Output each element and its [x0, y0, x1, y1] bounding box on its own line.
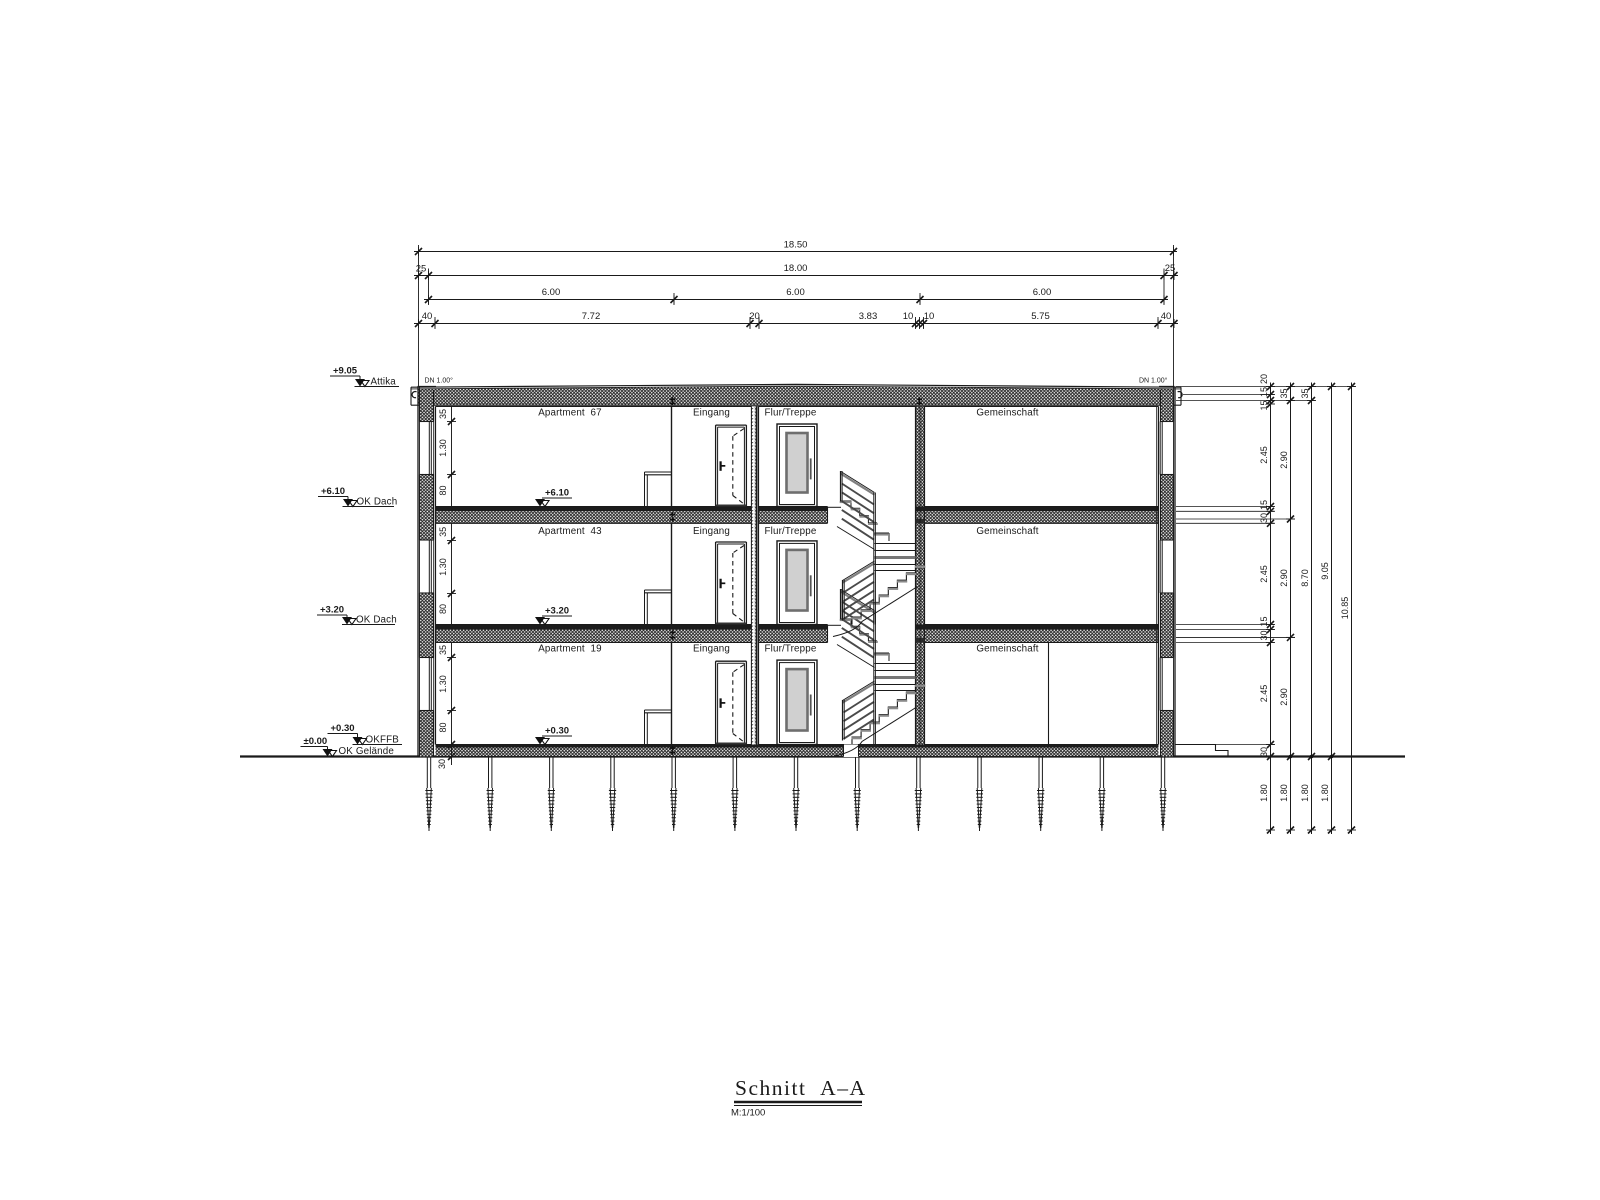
svg-text:2.90: 2.90 — [1279, 569, 1289, 587]
svg-text:2.90: 2.90 — [1279, 451, 1289, 469]
svg-text:+3.20: +3.20 — [320, 605, 344, 616]
svg-text:Apartment 67: Apartment 67 — [538, 408, 602, 419]
svg-text:1.30: 1.30 — [438, 439, 448, 457]
svg-text:Attika: Attika — [371, 377, 397, 388]
svg-text:80: 80 — [438, 485, 448, 495]
svg-text:18.00: 18.00 — [784, 263, 808, 274]
svg-text:Gemeinschaft: Gemeinschaft — [976, 644, 1038, 655]
svg-text:2.90: 2.90 — [1279, 688, 1289, 706]
svg-text:Flur/Treppe: Flur/Treppe — [765, 526, 817, 537]
svg-text:1.80: 1.80 — [1259, 784, 1269, 802]
svg-text:+6.10: +6.10 — [545, 488, 569, 499]
svg-text:35: 35 — [438, 409, 448, 419]
svg-text:9.05: 9.05 — [1320, 562, 1330, 580]
svg-text:30: 30 — [1259, 747, 1269, 757]
svg-text:7.72: 7.72 — [582, 311, 601, 322]
svg-text:+9.05: +9.05 — [333, 366, 358, 377]
svg-text:40: 40 — [1161, 311, 1172, 322]
svg-text:+0.30: +0.30 — [331, 723, 355, 734]
svg-text:1.80: 1.80 — [1300, 784, 1310, 802]
svg-text:30: 30 — [437, 759, 447, 769]
svg-text:DN 1.00°: DN 1.00° — [425, 377, 454, 385]
svg-text:35: 35 — [438, 645, 448, 655]
svg-text:25: 25 — [416, 264, 427, 275]
svg-text:Gemeinschaft: Gemeinschaft — [976, 408, 1038, 419]
svg-text:40: 40 — [422, 311, 433, 322]
svg-text:1.30: 1.30 — [438, 558, 448, 576]
svg-text:6.00: 6.00 — [786, 287, 805, 298]
svg-text:20: 20 — [749, 311, 760, 322]
svg-text:6.00: 6.00 — [1033, 287, 1052, 298]
svg-text:10: 10 — [924, 311, 935, 322]
svg-text:OK Dach: OK Dach — [357, 497, 398, 508]
svg-text:OK Gelände: OK Gelände — [339, 746, 395, 757]
svg-text:+6.10: +6.10 — [321, 486, 345, 497]
svg-text:35: 35 — [1279, 388, 1289, 398]
svg-text:15: 15 — [1259, 616, 1269, 626]
svg-text:18.50: 18.50 — [784, 240, 808, 251]
svg-text:10: 10 — [903, 311, 914, 322]
svg-text:35: 35 — [1300, 388, 1310, 398]
svg-text:Apartment 19: Apartment 19 — [538, 644, 602, 655]
svg-text:30: 30 — [1259, 513, 1269, 523]
svg-text:Eingang: Eingang — [693, 526, 730, 537]
svg-text:Gemeinschaft: Gemeinschaft — [976, 526, 1038, 537]
svg-text:DN 1.00°: DN 1.00° — [1139, 377, 1168, 385]
svg-text:+3.20: +3.20 — [545, 606, 569, 617]
svg-text:Flur/Treppe: Flur/Treppe — [765, 644, 817, 655]
svg-text:2.45: 2.45 — [1259, 446, 1269, 464]
svg-text:10.85: 10.85 — [1340, 597, 1350, 620]
svg-text:OKFFB: OKFFB — [366, 735, 400, 746]
svg-text:Schnitt A–A: Schnitt A–A — [735, 1076, 866, 1100]
svg-text:2.45: 2.45 — [1259, 685, 1269, 703]
svg-text:20: 20 — [1259, 374, 1269, 384]
svg-text:6.00: 6.00 — [542, 287, 561, 298]
svg-text:Eingang: Eingang — [693, 408, 730, 419]
svg-text:2.45: 2.45 — [1259, 565, 1269, 583]
svg-text:80: 80 — [438, 722, 448, 732]
svg-text:Flur/Treppe: Flur/Treppe — [765, 408, 817, 419]
svg-text:35: 35 — [438, 527, 448, 537]
svg-text:±0.00: ±0.00 — [304, 736, 328, 747]
svg-text:1.30: 1.30 — [438, 675, 448, 693]
svg-text:80: 80 — [438, 604, 448, 614]
svg-text:1.80: 1.80 — [1320, 784, 1330, 802]
svg-text:30: 30 — [1259, 630, 1269, 640]
svg-text:3.83: 3.83 — [859, 311, 878, 322]
svg-text:5.75: 5.75 — [1031, 311, 1050, 322]
svg-text:15: 15 — [1259, 400, 1269, 410]
svg-text:15: 15 — [1259, 387, 1269, 397]
svg-text:8.70: 8.70 — [1300, 569, 1310, 587]
svg-text:Apartment 43: Apartment 43 — [538, 526, 602, 537]
svg-text:1.80: 1.80 — [1279, 784, 1289, 802]
svg-text:+0.30: +0.30 — [545, 726, 569, 737]
svg-text:15: 15 — [1259, 500, 1269, 510]
svg-text:M:1/100: M:1/100 — [731, 1108, 765, 1119]
svg-text:OK Dach: OK Dach — [356, 615, 397, 626]
svg-text:Eingang: Eingang — [693, 644, 730, 655]
